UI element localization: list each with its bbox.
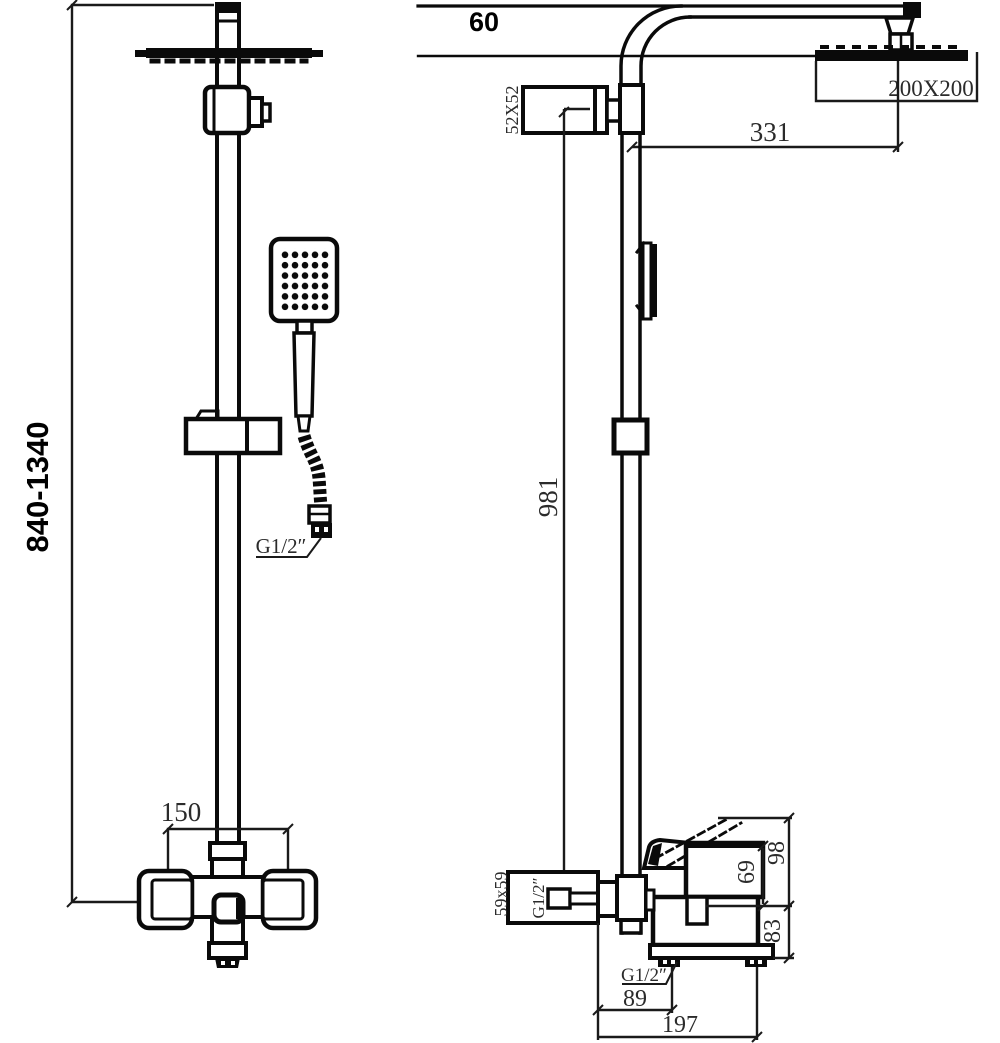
riser-length-dimension: 981 (533, 107, 569, 893)
inlet-thread-label: G1/2″ (529, 877, 548, 918)
mixer-base-plate (650, 945, 773, 958)
riser-length-label: 981 (533, 477, 563, 518)
ceiling-offset-dimension: 60 (418, 6, 905, 56)
arm-reach-label: 331 (750, 117, 791, 147)
slider-bracket-front (186, 411, 280, 453)
riser-pipe-side (621, 88, 641, 933)
wall-inlet-assembly: 59x59 G1/2″ (491, 872, 654, 924)
mixer-front: 150 (139, 797, 316, 968)
hand-shower-handle (294, 333, 314, 416)
head-size-label: 200X200 (888, 76, 974, 101)
hose-thread-label: G1/2″ (256, 534, 307, 558)
inlet-flange-size-label: 59x59 (491, 872, 511, 917)
overhead-shower-front (135, 48, 323, 61)
hand-shower-front: G1/2″ (256, 239, 337, 558)
mixer-spacing-label: 150 (161, 797, 202, 827)
shower-system-drawing: 840-1340 (0, 0, 1000, 1043)
outlet-thread-label: G1/2″ (621, 965, 667, 986)
nozzle-grid (279, 248, 329, 311)
height-range-label: 840-1340 (20, 421, 55, 552)
technical-drawing-sheet: 840-1340 (0, 0, 1000, 1043)
shower-head-side-plate (815, 50, 968, 61)
shower-head-plate (146, 48, 312, 58)
slider-bracket-side (614, 420, 647, 453)
front-view: 840-1340 (20, 0, 337, 968)
total-depth-label: 197 (662, 1012, 698, 1038)
holder-size-label: 52X52 (502, 86, 522, 135)
side-view: 60 200X200 331 (418, 2, 977, 1042)
hand-shower-holder-side: 52X52 (502, 85, 643, 135)
flexible-hose (304, 436, 321, 506)
spout-outlet (215, 958, 240, 968)
ceiling-offset-label: 60 (469, 7, 499, 37)
mixer-side (644, 818, 773, 967)
spout-to-base-label: 83 (760, 919, 786, 943)
overhead-shower-side: 200X200 (815, 47, 977, 101)
outlet-offset-label: 89 (623, 986, 647, 1012)
body-to-spout-label: 69 (734, 860, 760, 884)
lever-to-spout-label: 98 (764, 841, 790, 865)
upper-bracket-front (205, 87, 270, 133)
arm-reach-dimension: 331 (627, 61, 903, 152)
